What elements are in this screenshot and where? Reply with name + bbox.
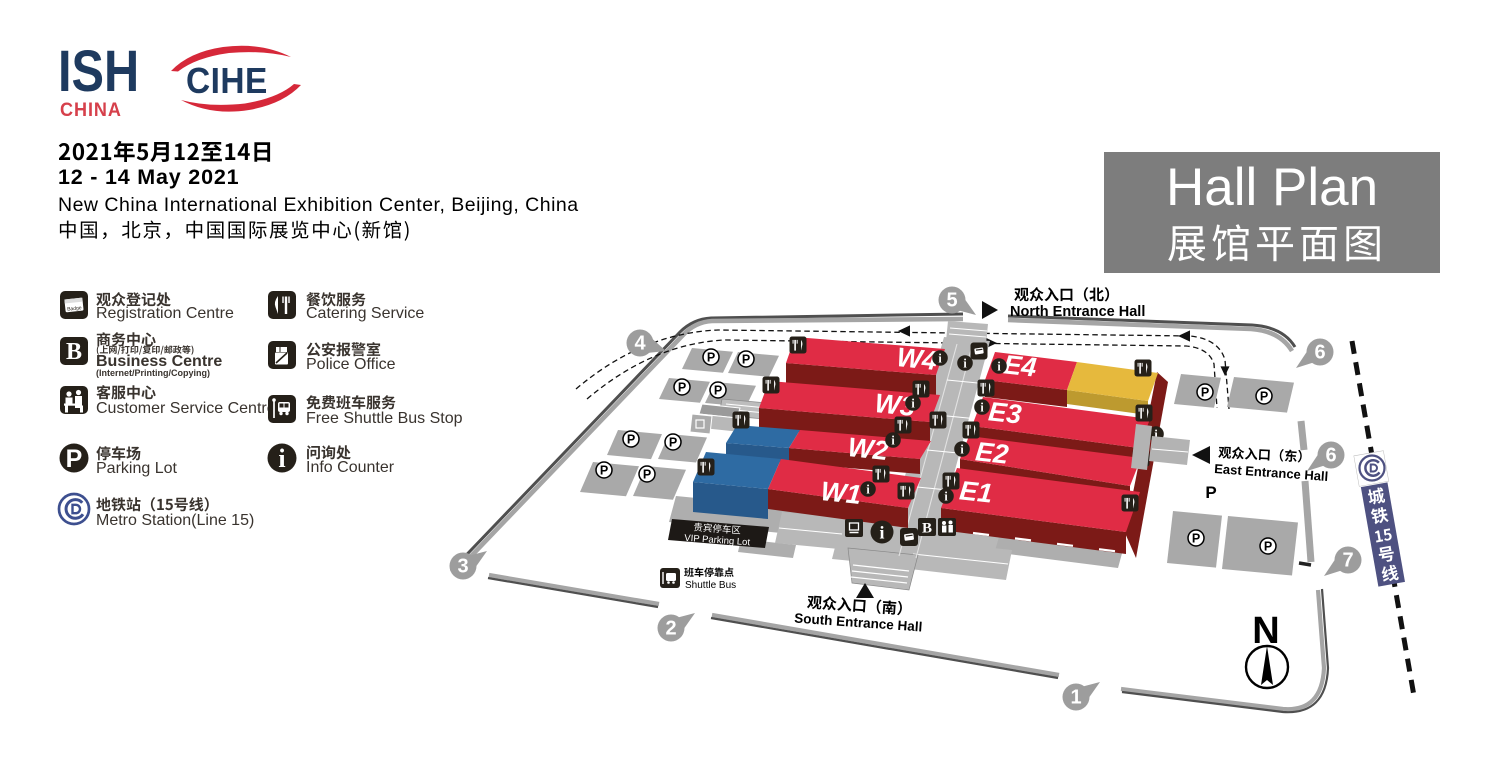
svg-text:1: 1 xyxy=(1070,687,1081,709)
svg-text:Registration Centre: Registration Centre xyxy=(96,305,234,322)
svg-text:P: P xyxy=(714,384,722,398)
svg-text:P: P xyxy=(678,381,686,395)
svg-text:P: P xyxy=(742,353,750,367)
svg-text:P: P xyxy=(1205,483,1216,502)
svg-text:Metro Station(Line 15): Metro Station(Line 15) xyxy=(96,512,254,529)
svg-text:P: P xyxy=(669,436,677,450)
svg-text:P: P xyxy=(627,433,635,447)
svg-text:7: 7 xyxy=(1342,550,1353,572)
svg-text:Info Counter: Info Counter xyxy=(306,459,395,476)
svg-text:North Entrance Hall: North Entrance Hall xyxy=(1010,304,1145,320)
svg-text:P: P xyxy=(643,468,651,482)
svg-text:i: i xyxy=(278,444,285,473)
svg-text:5: 5 xyxy=(946,290,957,312)
svg-text:i: i xyxy=(880,522,885,542)
svg-text:Police Office: Police Office xyxy=(306,356,396,373)
svg-text:E2: E2 xyxy=(974,436,1010,469)
svg-text:W1: W1 xyxy=(819,476,862,510)
svg-text:P: P xyxy=(1192,532,1200,546)
svg-text:B: B xyxy=(922,521,932,537)
svg-text:W4: W4 xyxy=(895,342,938,376)
svg-text:(Internet/Printing/Copying): (Internet/Printing/Copying) xyxy=(96,368,210,378)
svg-text:B: B xyxy=(66,339,82,365)
svg-text:E4: E4 xyxy=(1002,349,1038,382)
svg-text:3: 3 xyxy=(457,556,468,578)
svg-text:P: P xyxy=(66,445,83,473)
svg-text:E1: E1 xyxy=(958,475,994,508)
svg-text:E3: E3 xyxy=(987,396,1023,429)
svg-text:2: 2 xyxy=(665,618,676,640)
svg-text:W2: W2 xyxy=(846,432,889,466)
svg-text:Parking Lot: Parking Lot xyxy=(96,460,177,477)
svg-text:6: 6 xyxy=(1314,342,1325,364)
svg-text:Shuttle Bus: Shuttle Bus xyxy=(685,580,736,591)
svg-text:4: 4 xyxy=(634,333,646,355)
svg-text:P: P xyxy=(1264,540,1272,554)
svg-text:Customer Service Centre: Customer Service Centre xyxy=(96,400,276,417)
svg-text:P: P xyxy=(1260,390,1268,404)
svg-text:P: P xyxy=(600,464,608,478)
svg-text:P: P xyxy=(1201,386,1209,400)
svg-text:P: P xyxy=(707,351,715,365)
svg-text:Free Shuttle Bus Stop: Free Shuttle Bus Stop xyxy=(306,410,463,427)
svg-text:6: 6 xyxy=(1325,445,1336,467)
svg-text:Catering Service: Catering Service xyxy=(306,305,424,322)
